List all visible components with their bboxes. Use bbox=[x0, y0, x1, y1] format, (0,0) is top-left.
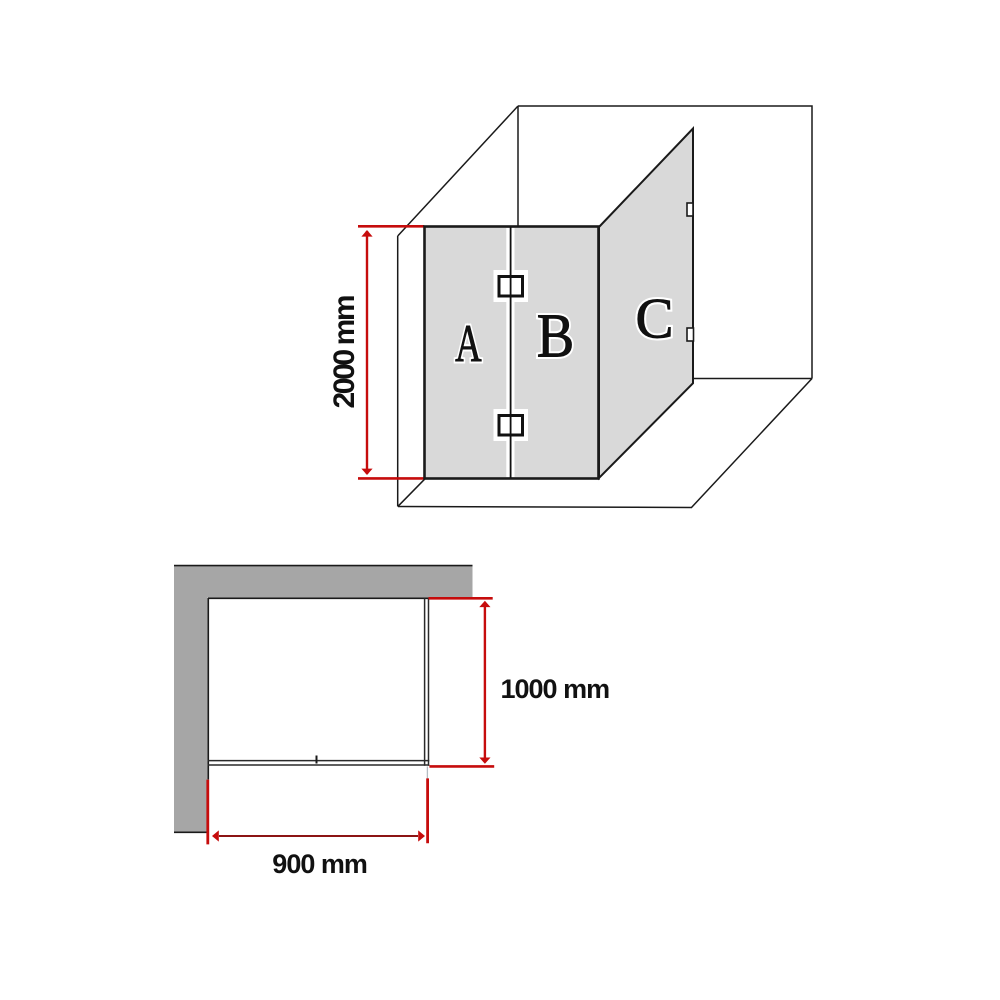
svg-text:C: C bbox=[635, 288, 673, 351]
svg-text:900 mm: 900 mm bbox=[272, 849, 367, 879]
svg-text:B: B bbox=[537, 301, 575, 370]
svg-text:2000 mm: 2000 mm bbox=[328, 296, 361, 408]
svg-text:A: A bbox=[455, 315, 482, 373]
svg-text:1000 mm: 1000 mm bbox=[501, 674, 610, 704]
